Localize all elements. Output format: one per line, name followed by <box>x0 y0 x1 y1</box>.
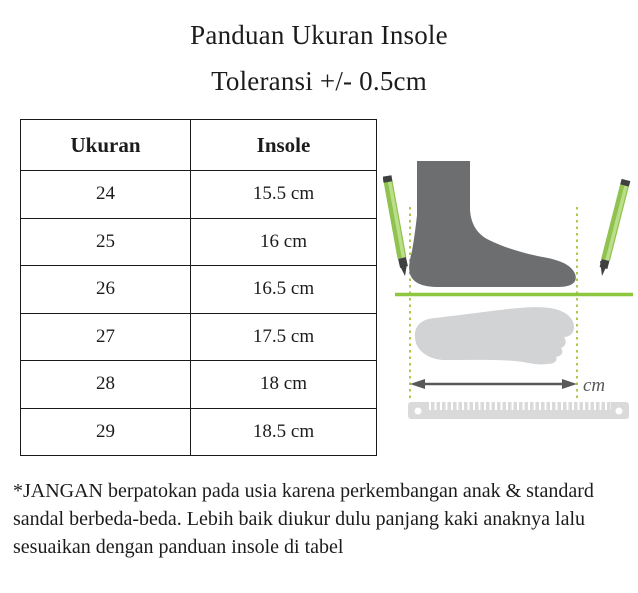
size-cell: 24 <box>21 171 191 219</box>
column-header-ukuran: Ukuran <box>21 120 191 171</box>
insole-cell: 18 cm <box>191 361 377 409</box>
table-row: 24 15.5 cm <box>21 171 377 219</box>
size-table: Ukuran Insole 24 15.5 cm 25 16 cm 26 16.… <box>20 119 377 456</box>
table-row: 29 18.5 cm <box>21 408 377 456</box>
foot-measurement-illustration: cm <box>383 140 635 425</box>
insole-cell: 16.5 cm <box>191 266 377 314</box>
table-header-row: Ukuran Insole <box>21 120 377 171</box>
page-title: Panduan Ukuran Insole <box>0 20 638 51</box>
table-row: 28 18 cm <box>21 361 377 409</box>
footnote-line: sesuaikan dengan panduan insole di tabel <box>13 533 633 561</box>
insole-cell: 17.5 cm <box>191 313 377 361</box>
size-cell: 25 <box>21 218 191 266</box>
insole-cell: 18.5 cm <box>191 408 377 456</box>
size-cell: 29 <box>21 408 191 456</box>
size-cell: 27 <box>21 313 191 361</box>
length-arrow-icon <box>410 379 577 389</box>
footnote-line: sandal berbeda-beda. Lebih baik diukur d… <box>13 505 633 533</box>
left-pencil-icon <box>387 176 407 276</box>
size-cell: 28 <box>21 361 191 409</box>
ruler-icon <box>408 402 629 419</box>
insole-cell: 15.5 cm <box>191 171 377 219</box>
right-pencil-icon <box>600 180 626 276</box>
footnote: *JANGAN berpatokan pada usia karena perk… <box>13 477 633 561</box>
footnote-line: *JANGAN berpatokan pada usia karena perk… <box>13 477 633 505</box>
foot-silhouette-icon <box>409 161 576 287</box>
page-subtitle: Toleransi +/- 0.5cm <box>0 66 638 97</box>
size-cell: 26 <box>21 266 191 314</box>
table-row: 25 16 cm <box>21 218 377 266</box>
cm-unit-label: cm <box>583 375 605 396</box>
insole-cell: 16 cm <box>191 218 377 266</box>
footprint-silhouette-icon <box>415 307 574 364</box>
size-guide-page: Panduan Ukuran Insole Toleransi +/- 0.5c… <box>0 0 638 593</box>
table-row: 26 16.5 cm <box>21 266 377 314</box>
column-header-insole: Insole <box>191 120 377 171</box>
table-row: 27 17.5 cm <box>21 313 377 361</box>
